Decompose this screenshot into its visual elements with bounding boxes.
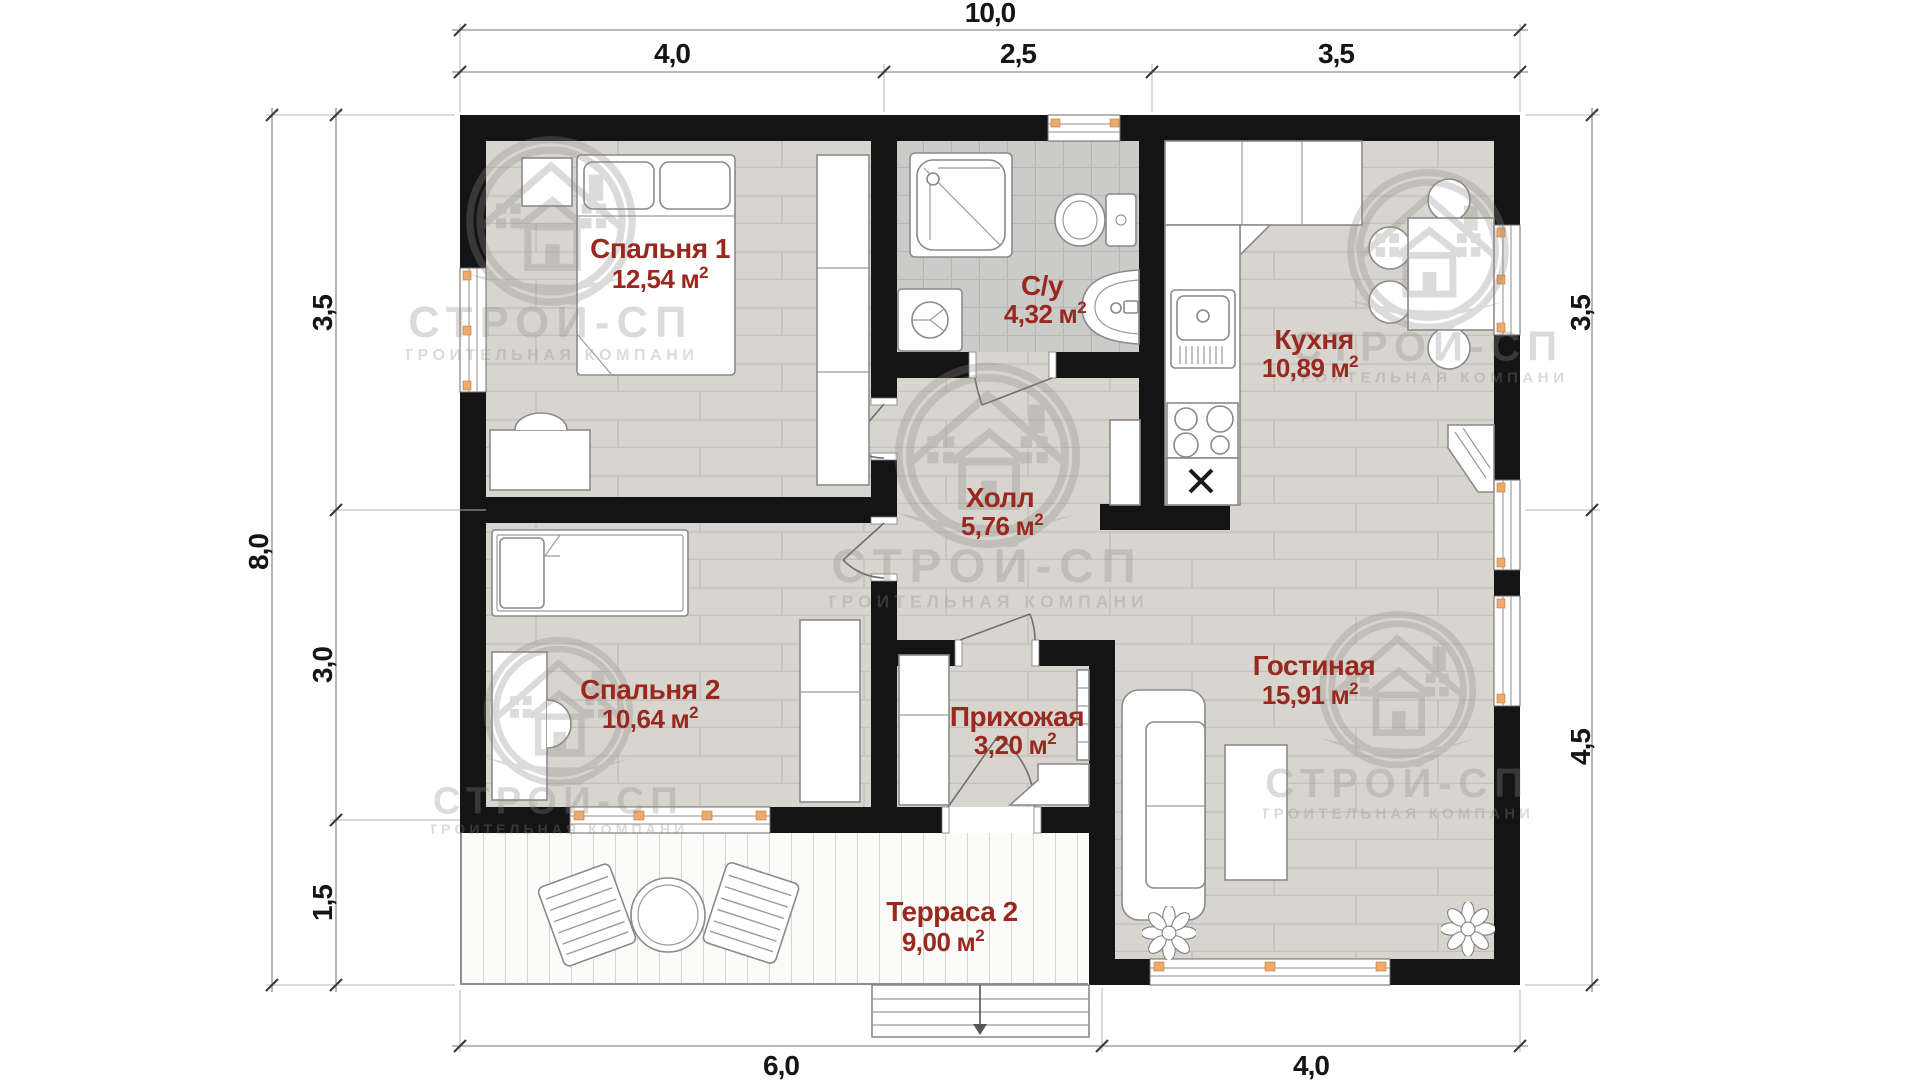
- washing-machine-icon: [898, 289, 962, 351]
- svg-text:9,00м2: 9,00м2: [902, 926, 984, 957]
- room-label-kitchen: Кухня 10,89м2: [1262, 324, 1358, 383]
- dim-bottom-seg2: 4,0: [1293, 1050, 1329, 1080]
- terrace-table-icon: [631, 878, 705, 952]
- svg-text:Гостиная: Гостиная: [1253, 650, 1376, 681]
- boiler-unit-icon: [1167, 458, 1238, 505]
- dim-bottom-seg1: 6,0: [763, 1050, 799, 1080]
- dim-right-seg1: 3,5: [1565, 295, 1596, 331]
- plant-icon: [1440, 901, 1496, 957]
- svg-text:3,20м2: 3,20м2: [974, 729, 1056, 760]
- plant-icon: [1141, 905, 1197, 961]
- room-label-hall: Холл 5,76м2: [961, 482, 1043, 541]
- window-bathroom-top: [1048, 115, 1120, 141]
- dim-top-seg2: 2,5: [1000, 38, 1036, 69]
- dim-top-seg3: 3,5: [1318, 38, 1354, 69]
- entrance-stairs-icon: [872, 985, 1089, 1037]
- kitchen-sink-icon: [1171, 290, 1235, 368]
- wardrobe-bedroom1-icon: [817, 155, 869, 485]
- toilet-icon: [1055, 194, 1136, 246]
- svg-text:10,64м2: 10,64м2: [602, 703, 698, 734]
- dim-left-total: 8,0: [243, 534, 274, 570]
- dim-right-seg2: 4,5: [1565, 729, 1596, 765]
- dim-top-seg1: 4,0: [654, 38, 690, 69]
- sofa-icon: [1122, 690, 1205, 920]
- svg-text:10,89м2: 10,89м2: [1262, 352, 1358, 383]
- single-bed-icon: [492, 530, 688, 616]
- svg-text:15,91м2: 15,91м2: [1262, 679, 1358, 710]
- floor-plan-page: СТРОЙ-СП СТРОИТЕЛЬНАЯ КОМПАНИЯ: [0, 0, 1920, 1080]
- svg-text:Терраса 2: Терраса 2: [886, 896, 1017, 927]
- stove-icon: [1167, 403, 1238, 458]
- svg-text:С/у: С/у: [1021, 270, 1064, 301]
- dim-top-total: 10,0: [965, 0, 1016, 28]
- window-living-bottom: [1150, 959, 1390, 985]
- svg-text:Спальня 2: Спальня 2: [580, 674, 720, 705]
- dim-left-seg3: 1,5: [307, 885, 338, 921]
- svg-text:12,54м2: 12,54м2: [612, 263, 708, 294]
- dim-left-seg1: 3,5: [307, 295, 338, 331]
- svg-text:Кухня: Кухня: [1274, 324, 1353, 355]
- entry-wardrobe-icon: [899, 655, 949, 805]
- wardrobe-bedroom2-icon: [800, 620, 860, 802]
- window-living-right: [1494, 480, 1520, 570]
- svg-text:5,76м2: 5,76м2: [961, 510, 1043, 541]
- shower-icon: [910, 153, 1012, 257]
- floor-plan-drawing: СТРОЙ-СП СТРОИТЕЛЬНАЯ КОМПАНИЯ: [0, 0, 1920, 1080]
- svg-text:Холл: Холл: [966, 482, 1034, 513]
- dim-left-seg2: 3,0: [307, 647, 338, 683]
- terrace-furniture: [537, 861, 800, 967]
- svg-text:4,32м2: 4,32м2: [1004, 298, 1086, 329]
- svg-text:Спальня 1: Спальня 1: [590, 233, 730, 264]
- svg-text:Прихожая: Прихожая: [950, 701, 1084, 732]
- window-living-right-tall: [1494, 596, 1520, 706]
